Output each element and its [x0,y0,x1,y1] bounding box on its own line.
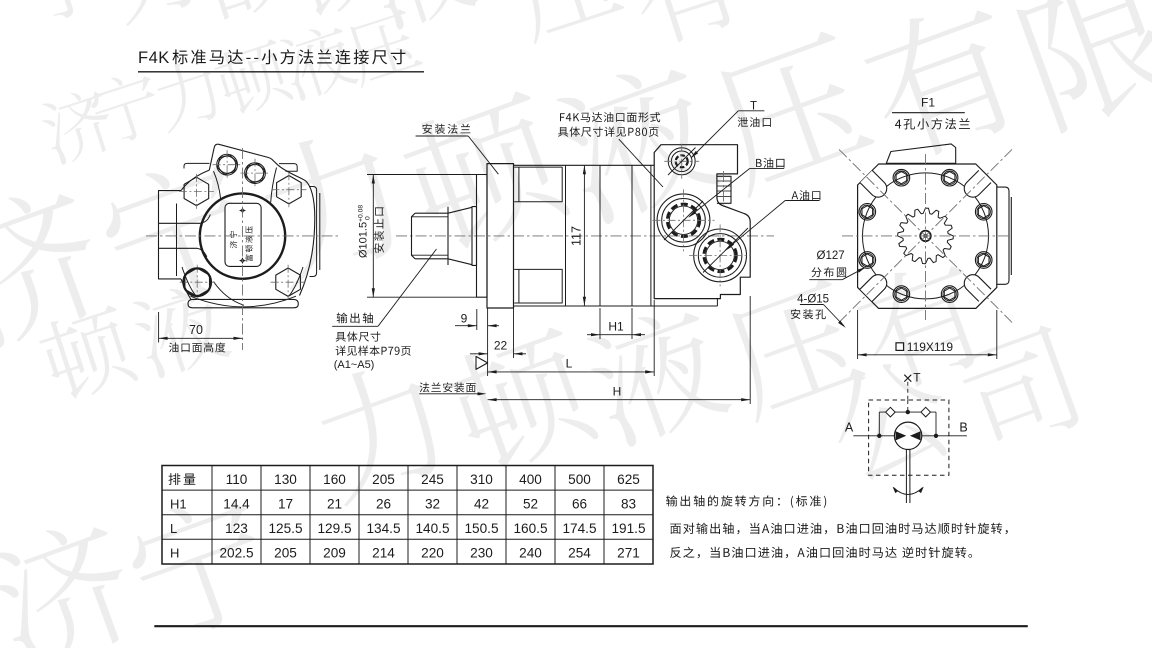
svg-text:123: 123 [225,521,248,536]
svg-text:H: H [170,546,179,561]
svg-text:160.5: 160.5 [513,521,547,536]
svg-text:310: 310 [470,472,493,487]
svg-text:240: 240 [519,546,542,561]
svg-text:B: B [959,421,967,435]
svg-text:26: 26 [376,497,391,512]
svg-text:220: 220 [421,546,444,561]
svg-text:129.5: 129.5 [317,521,351,536]
svg-text:4-Ø15: 4-Ø15 [797,294,829,306]
svg-text:Ø127: Ø127 [817,250,845,262]
svg-text:17: 17 [278,497,293,512]
svg-text:9: 9 [461,312,468,326]
svg-text:174.5: 174.5 [562,521,596,536]
svg-text:205: 205 [372,472,395,487]
svg-text:271: 271 [617,546,640,561]
svg-text:150.5: 150.5 [464,521,498,536]
svg-text:125.5: 125.5 [268,521,302,536]
svg-text:F1: F1 [921,95,935,109]
svg-text:14.4: 14.4 [223,497,250,512]
svg-text:117: 117 [570,226,584,246]
svg-text:52: 52 [523,497,538,512]
svg-text:H1: H1 [170,497,187,512]
svg-text:L: L [170,521,177,536]
svg-text:22: 22 [494,339,508,353]
svg-text:245: 245 [421,472,444,487]
svg-text:70: 70 [189,323,203,337]
svg-text:134.5: 134.5 [366,521,400,536]
svg-text:254: 254 [568,546,591,561]
svg-text:400: 400 [519,472,542,487]
svg-text:230: 230 [470,546,493,561]
svg-text:110: 110 [226,472,248,487]
svg-text:214: 214 [372,546,395,561]
svg-text:66: 66 [572,497,587,512]
svg-text:21: 21 [327,497,342,512]
svg-text:0: 0 [364,216,371,220]
svg-text:140.5: 140.5 [415,521,449,536]
svg-text:H1: H1 [608,320,624,334]
svg-text:130: 130 [274,472,297,487]
svg-text:(A1~A5): (A1~A5) [334,359,375,371]
svg-text:83: 83 [621,497,636,512]
svg-text:119X119: 119X119 [907,340,954,354]
svg-text:T: T [913,371,921,385]
svg-text:Ø101.5: Ø101.5 [358,222,370,258]
svg-text:A: A [845,421,854,435]
svg-text:191.5: 191.5 [611,521,645,536]
svg-text:H: H [613,385,622,399]
svg-text:F4K: F4K [138,49,170,67]
svg-text:500: 500 [568,472,591,487]
svg-text:160: 160 [323,472,346,487]
svg-text:209: 209 [323,546,346,561]
svg-text:202.5: 202.5 [219,546,253,561]
svg-text:32: 32 [425,497,440,512]
svg-text:205: 205 [274,546,297,561]
svg-text:625: 625 [617,472,640,487]
svg-text:42: 42 [474,497,489,512]
svg-text:L: L [566,357,573,371]
